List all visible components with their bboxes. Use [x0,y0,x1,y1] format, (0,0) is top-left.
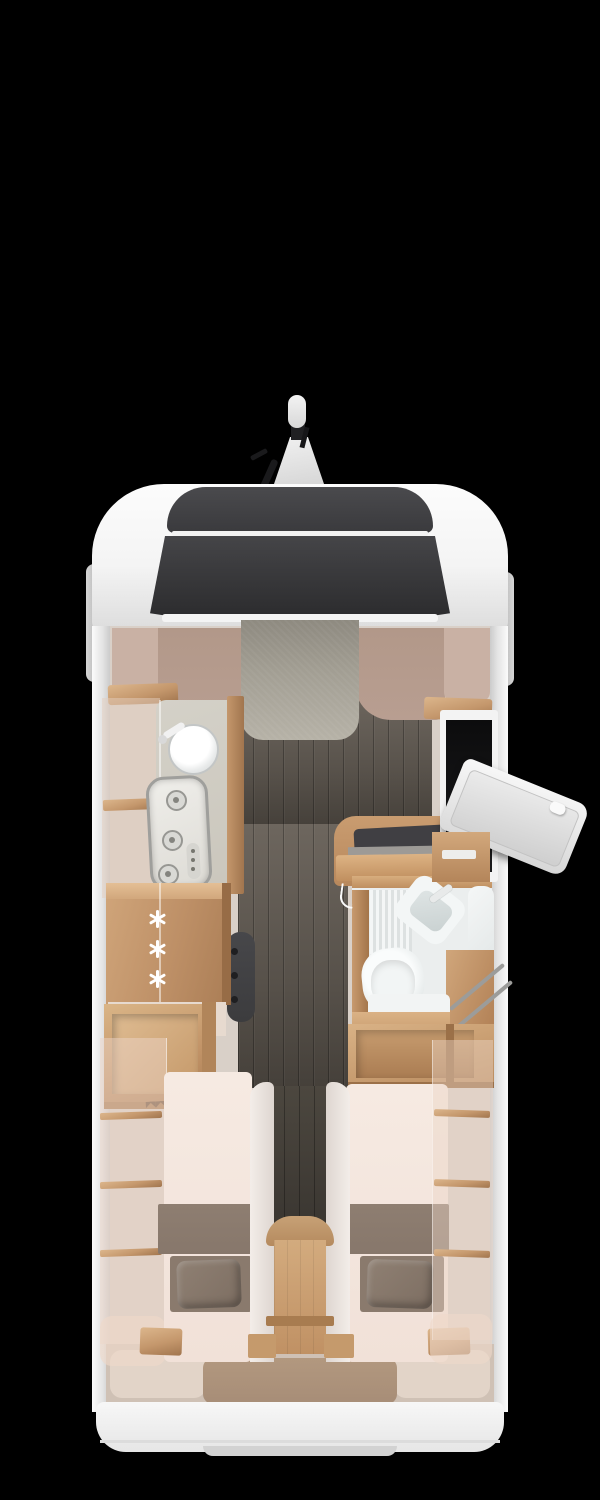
windscreen-divider [172,531,428,536]
roof-mirror-arm [250,448,268,461]
hob-burner-1 [166,790,187,811]
hob-knob-3 [191,867,195,871]
windscreen [150,536,450,620]
bed-right-pillow [366,1259,434,1309]
snowflake-icon [148,910,166,928]
hob-burner-3 [158,864,179,885]
fridge-side-edge [222,883,231,1005]
entry-step-edge [442,850,476,859]
steps-cross-rail [266,1316,334,1326]
roof-mirror-head [288,395,306,428]
shelf-overhang-right [432,1040,493,1340]
snowflake-icon [148,970,166,988]
bed-left-blanket [158,1204,252,1254]
floorplan-stage [0,0,600,1500]
steps-wing-left [248,1334,276,1358]
rear-wall [96,1402,504,1452]
snowflake-icon [148,940,166,958]
bed-left-foot-board [140,1327,183,1355]
fridge-cabinet [106,899,231,1005]
heater-vent-1 [231,948,238,955]
hob-burner-2 [162,830,183,851]
rear-bumper-lip [203,1446,397,1456]
garage-mat-center [203,1358,397,1404]
steps-wing-right [324,1334,354,1358]
dropdown-bed [241,620,359,740]
heater-vent-3 [231,996,238,1003]
heater-vent-2 [231,972,238,979]
steps-ramp [274,1240,326,1354]
rear-seam [100,1440,500,1443]
hob-knob-1 [191,849,195,853]
shelf-overhang-right-foot [430,1314,492,1364]
roof-window [167,487,433,533]
cab-cabinet-right-outer [444,628,490,702]
kitchen-faucet-base [158,735,167,744]
kitchen-side-panel [227,696,244,894]
hob-knob-2 [191,858,195,862]
bed-left-pillow [176,1259,242,1309]
shelf-overhang-left [100,1038,167,1344]
